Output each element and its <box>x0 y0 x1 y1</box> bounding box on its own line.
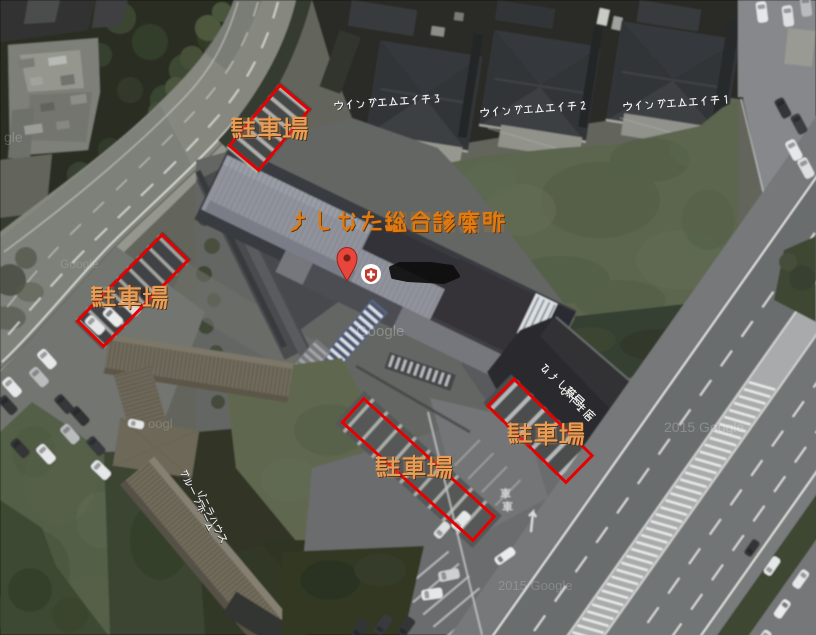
svg-text:2015 Google: 2015 Google <box>664 419 744 435</box>
svg-text:Google: Google <box>356 323 404 340</box>
svg-text:gle: gle <box>4 129 23 145</box>
svg-text:2015 Google: 2015 Google <box>498 578 572 593</box>
svg-text:Google: Google <box>60 257 99 271</box>
svg-text:oogl: oogl <box>148 416 173 431</box>
